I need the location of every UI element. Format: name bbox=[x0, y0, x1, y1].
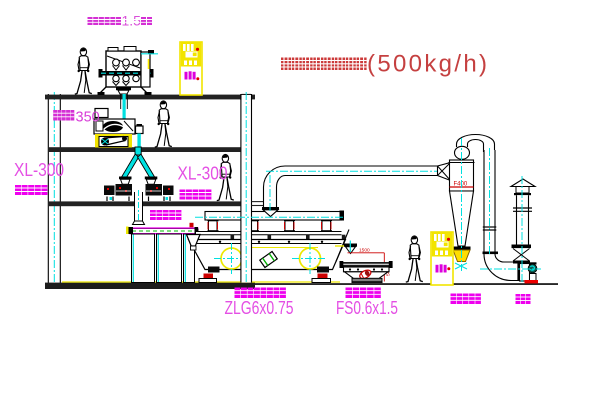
svg-text:ZLG6x0.75: ZLG6x0.75 bbox=[225, 298, 294, 318]
svg-text:F400: F400 bbox=[454, 182, 468, 188]
svg-text:1.5: 1.5 bbox=[122, 13, 142, 29]
svg-text:XL-300: XL-300 bbox=[178, 163, 228, 184]
svg-text:350: 350 bbox=[76, 110, 100, 126]
svg-text:(500kg/h): (500kg/h) bbox=[367, 51, 487, 78]
svg-text:FS0.6x1.5: FS0.6x1.5 bbox=[336, 298, 398, 318]
svg-text:XL-300: XL-300 bbox=[14, 159, 64, 180]
